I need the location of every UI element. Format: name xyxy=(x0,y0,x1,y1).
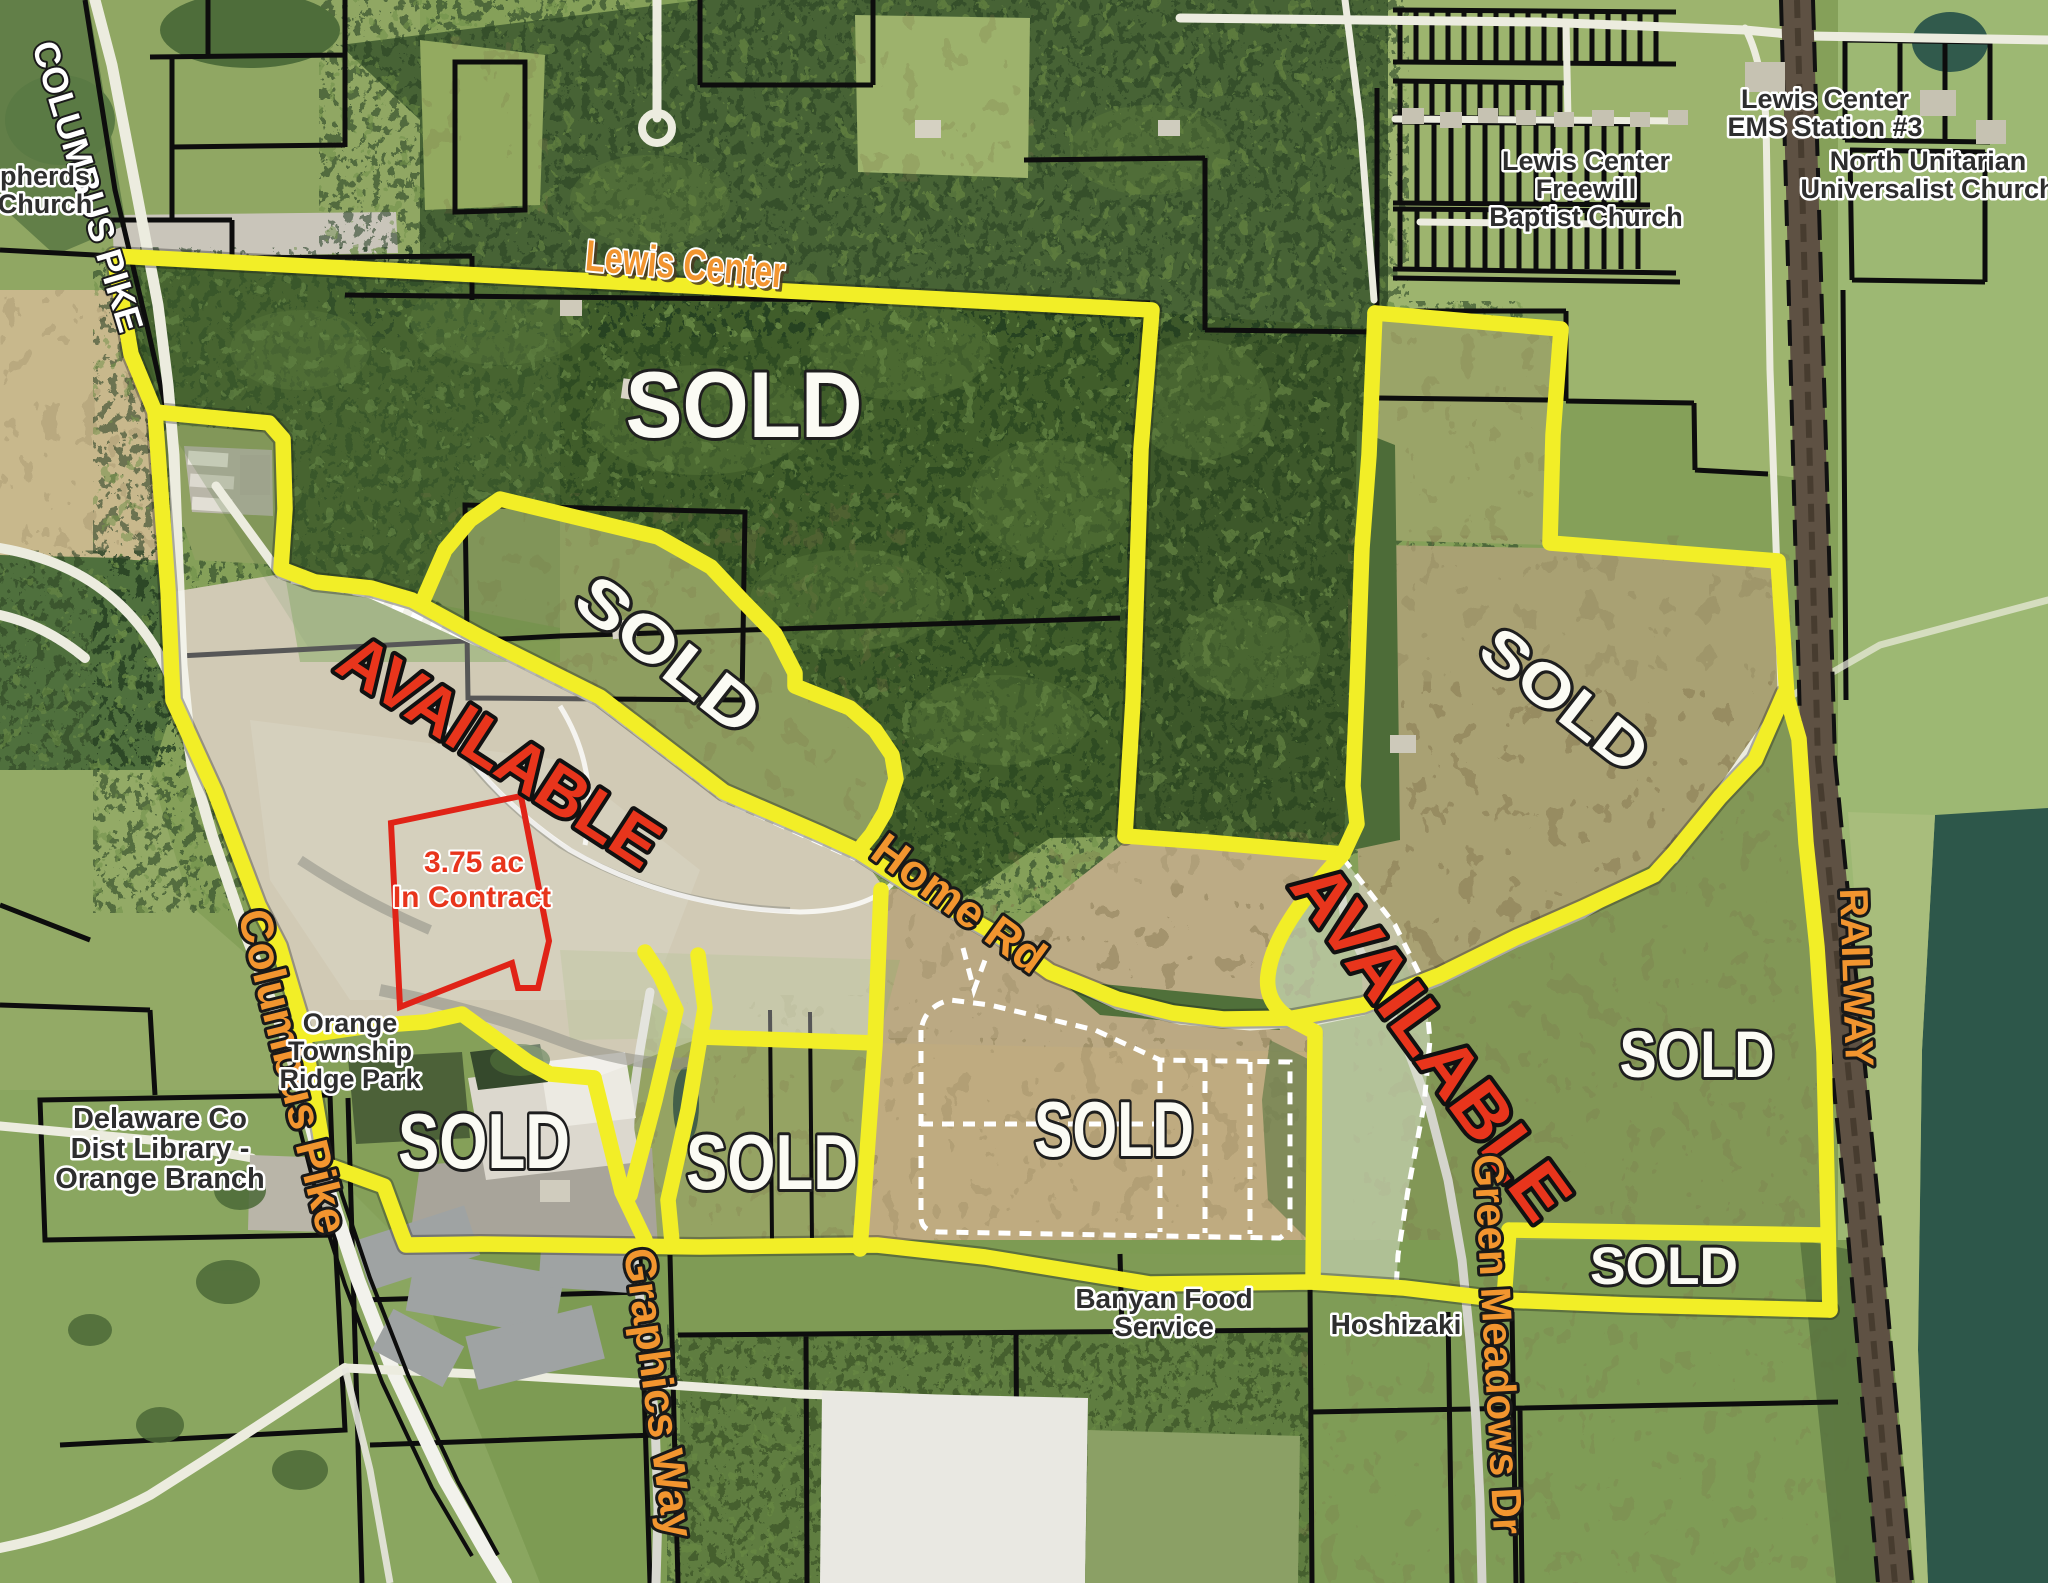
svg-text:SOLD: SOLD xyxy=(398,1097,570,1185)
svg-text:Orange: Orange xyxy=(303,1008,398,1038)
svg-text:SOLD: SOLD xyxy=(1590,1237,1738,1296)
svg-text:Ridge Park: Ridge Park xyxy=(279,1064,421,1094)
svg-text:EMS Station #3: EMS Station #3 xyxy=(1727,112,1922,142)
svg-text:SOLD: SOLD xyxy=(1620,1017,1775,1091)
svg-text:North Unitarian: North Unitarian xyxy=(1830,146,2027,176)
svg-text:Lewis Center: Lewis Center xyxy=(1502,146,1671,176)
svg-text:Service: Service xyxy=(1114,1311,1214,1342)
svg-text:Banyan Food: Banyan Food xyxy=(1075,1283,1252,1314)
svg-text:Church: Church xyxy=(0,189,92,219)
svg-text:Delaware Co: Delaware Co xyxy=(73,1103,247,1135)
svg-text:Dist Library -: Dist Library - xyxy=(71,1133,250,1165)
svg-text:In Contract: In Contract xyxy=(393,881,551,914)
svg-text:Universalist Church: Universalist Church xyxy=(1800,174,2048,204)
svg-text:SOLD: SOLD xyxy=(686,1118,858,1206)
svg-text:pherds: pherds xyxy=(0,161,90,191)
svg-text:SOLD: SOLD xyxy=(1034,1085,1194,1173)
svg-text:RAILWAY: RAILWAY xyxy=(1831,888,1881,1068)
svg-text:Baptist Church: Baptist Church xyxy=(1489,202,1683,232)
svg-text:Township: Township xyxy=(288,1036,412,1066)
svg-text:Hoshizaki: Hoshizaki xyxy=(1331,1309,1462,1340)
svg-text:Orange Branch: Orange Branch xyxy=(55,1163,265,1195)
svg-text:SOLD: SOLD xyxy=(626,352,863,457)
svg-text:Freewill: Freewill xyxy=(1536,174,1637,204)
svg-text:3.75 ac: 3.75 ac xyxy=(424,846,524,879)
svg-text:Lewis Center: Lewis Center xyxy=(1741,84,1910,114)
